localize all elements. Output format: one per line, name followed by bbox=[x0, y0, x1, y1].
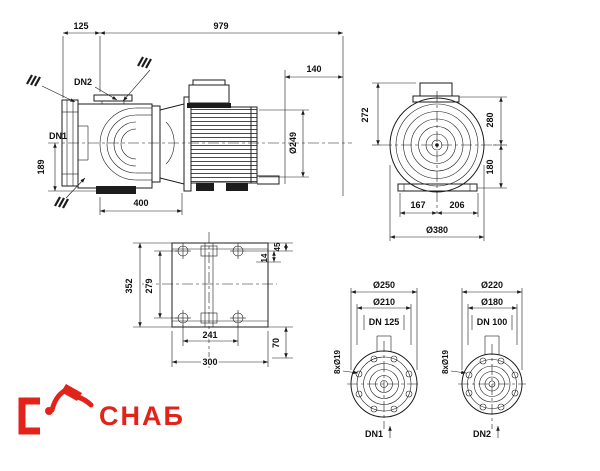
dim-300: 300 bbox=[202, 357, 217, 367]
flange-dn2-view: Ø220 Ø180 DN 100 8xØ19 DN2 bbox=[441, 280, 526, 439]
bolt-holes bbox=[175, 243, 246, 326]
motor-flange bbox=[184, 97, 191, 191]
dim-14: 14 bbox=[260, 253, 269, 262]
dim-167: 167 bbox=[410, 200, 425, 210]
pump-foot bbox=[96, 186, 136, 194]
motor-body bbox=[191, 107, 257, 183]
flange-dn1-view: Ø250 Ø210 DN 125 8xØ19 DN1 bbox=[333, 280, 421, 439]
dim-206: 206 bbox=[449, 200, 464, 210]
side-view: 125 979 140 Ø249 189 400 DN2 DN1 bbox=[27, 21, 352, 215]
dim-holes-dn2: 8xØ19 bbox=[441, 349, 450, 374]
dim-241: 241 bbox=[202, 330, 217, 340]
dim-272: 272 bbox=[360, 107, 370, 122]
dim-979: 979 bbox=[213, 21, 228, 31]
dim-189: 189 bbox=[36, 159, 46, 174]
port-mark-top bbox=[138, 57, 151, 68]
dim-125: 125 bbox=[73, 21, 88, 31]
dim-280: 280 bbox=[485, 112, 495, 127]
pump-dimension-drawing: 125 979 140 Ø249 189 400 DN2 DN1 bbox=[0, 0, 600, 471]
terminal-box bbox=[189, 85, 229, 103]
port-mark-bottom bbox=[55, 197, 68, 208]
logo-c-bracket bbox=[22, 401, 40, 431]
fan-view: 272 280 180 167 206 Ø380 bbox=[360, 83, 507, 241]
label-dn100: DN 100 bbox=[477, 317, 508, 327]
dim-352: 352 bbox=[124, 278, 134, 293]
logo-spout bbox=[78, 397, 91, 405]
base-view: 352 279 45 14 70 241 300 bbox=[124, 232, 293, 368]
label-dn2: DN2 bbox=[74, 77, 92, 87]
port-mark-left bbox=[27, 75, 40, 86]
dim-dia210: Ø210 bbox=[373, 297, 395, 307]
terminal-box-end bbox=[420, 83, 452, 96]
dim-400: 400 bbox=[133, 198, 148, 208]
dim-dia220: Ø220 bbox=[481, 280, 503, 290]
dim-180: 180 bbox=[485, 159, 495, 174]
dim-dia180: Ø180 bbox=[481, 297, 503, 307]
dim-45: 45 bbox=[273, 242, 282, 251]
lantern bbox=[152, 106, 160, 182]
dim-279: 279 bbox=[144, 278, 154, 293]
label-dn1-port: DN1 bbox=[365, 429, 383, 439]
discharge-flange bbox=[94, 95, 132, 101]
logo: СНАБ bbox=[22, 384, 185, 431]
dim-dia380: Ø380 bbox=[426, 225, 448, 235]
dim-140: 140 bbox=[306, 64, 321, 74]
motor-base bbox=[398, 184, 477, 191]
drawing-svg: 125 979 140 Ø249 189 400 DN2 DN1 bbox=[0, 0, 600, 471]
pump-volute bbox=[78, 104, 152, 188]
dim-holes-dn1: 8xØ19 bbox=[333, 349, 342, 374]
label-dn125: DN 125 bbox=[369, 317, 400, 327]
dim-dia249: Ø249 bbox=[288, 132, 298, 154]
logo-text: СНАБ bbox=[99, 401, 185, 431]
label-dn2-port: DN2 bbox=[473, 429, 491, 439]
label-dn1: DN1 bbox=[49, 131, 67, 141]
dim-dia250: Ø250 bbox=[373, 280, 395, 290]
dim-70: 70 bbox=[271, 338, 281, 348]
